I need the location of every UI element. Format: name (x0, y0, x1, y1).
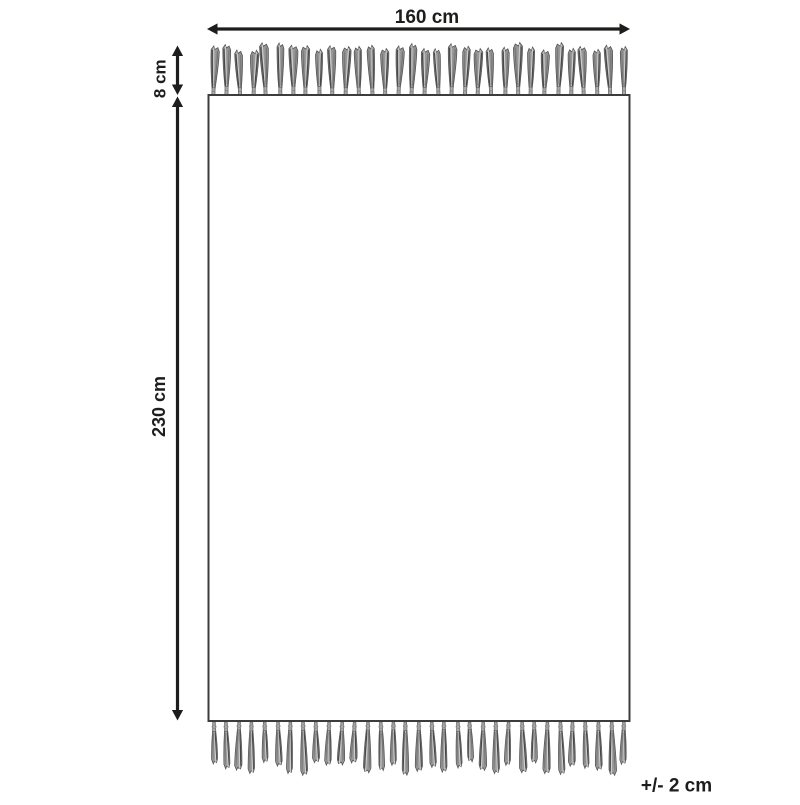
svg-text:+/- 2 cm: +/- 2 cm (641, 776, 712, 797)
svg-text:230 cm: 230 cm (149, 376, 169, 437)
svg-text:160 cm: 160 cm (395, 7, 459, 28)
svg-text:8 cm: 8 cm (151, 59, 170, 98)
